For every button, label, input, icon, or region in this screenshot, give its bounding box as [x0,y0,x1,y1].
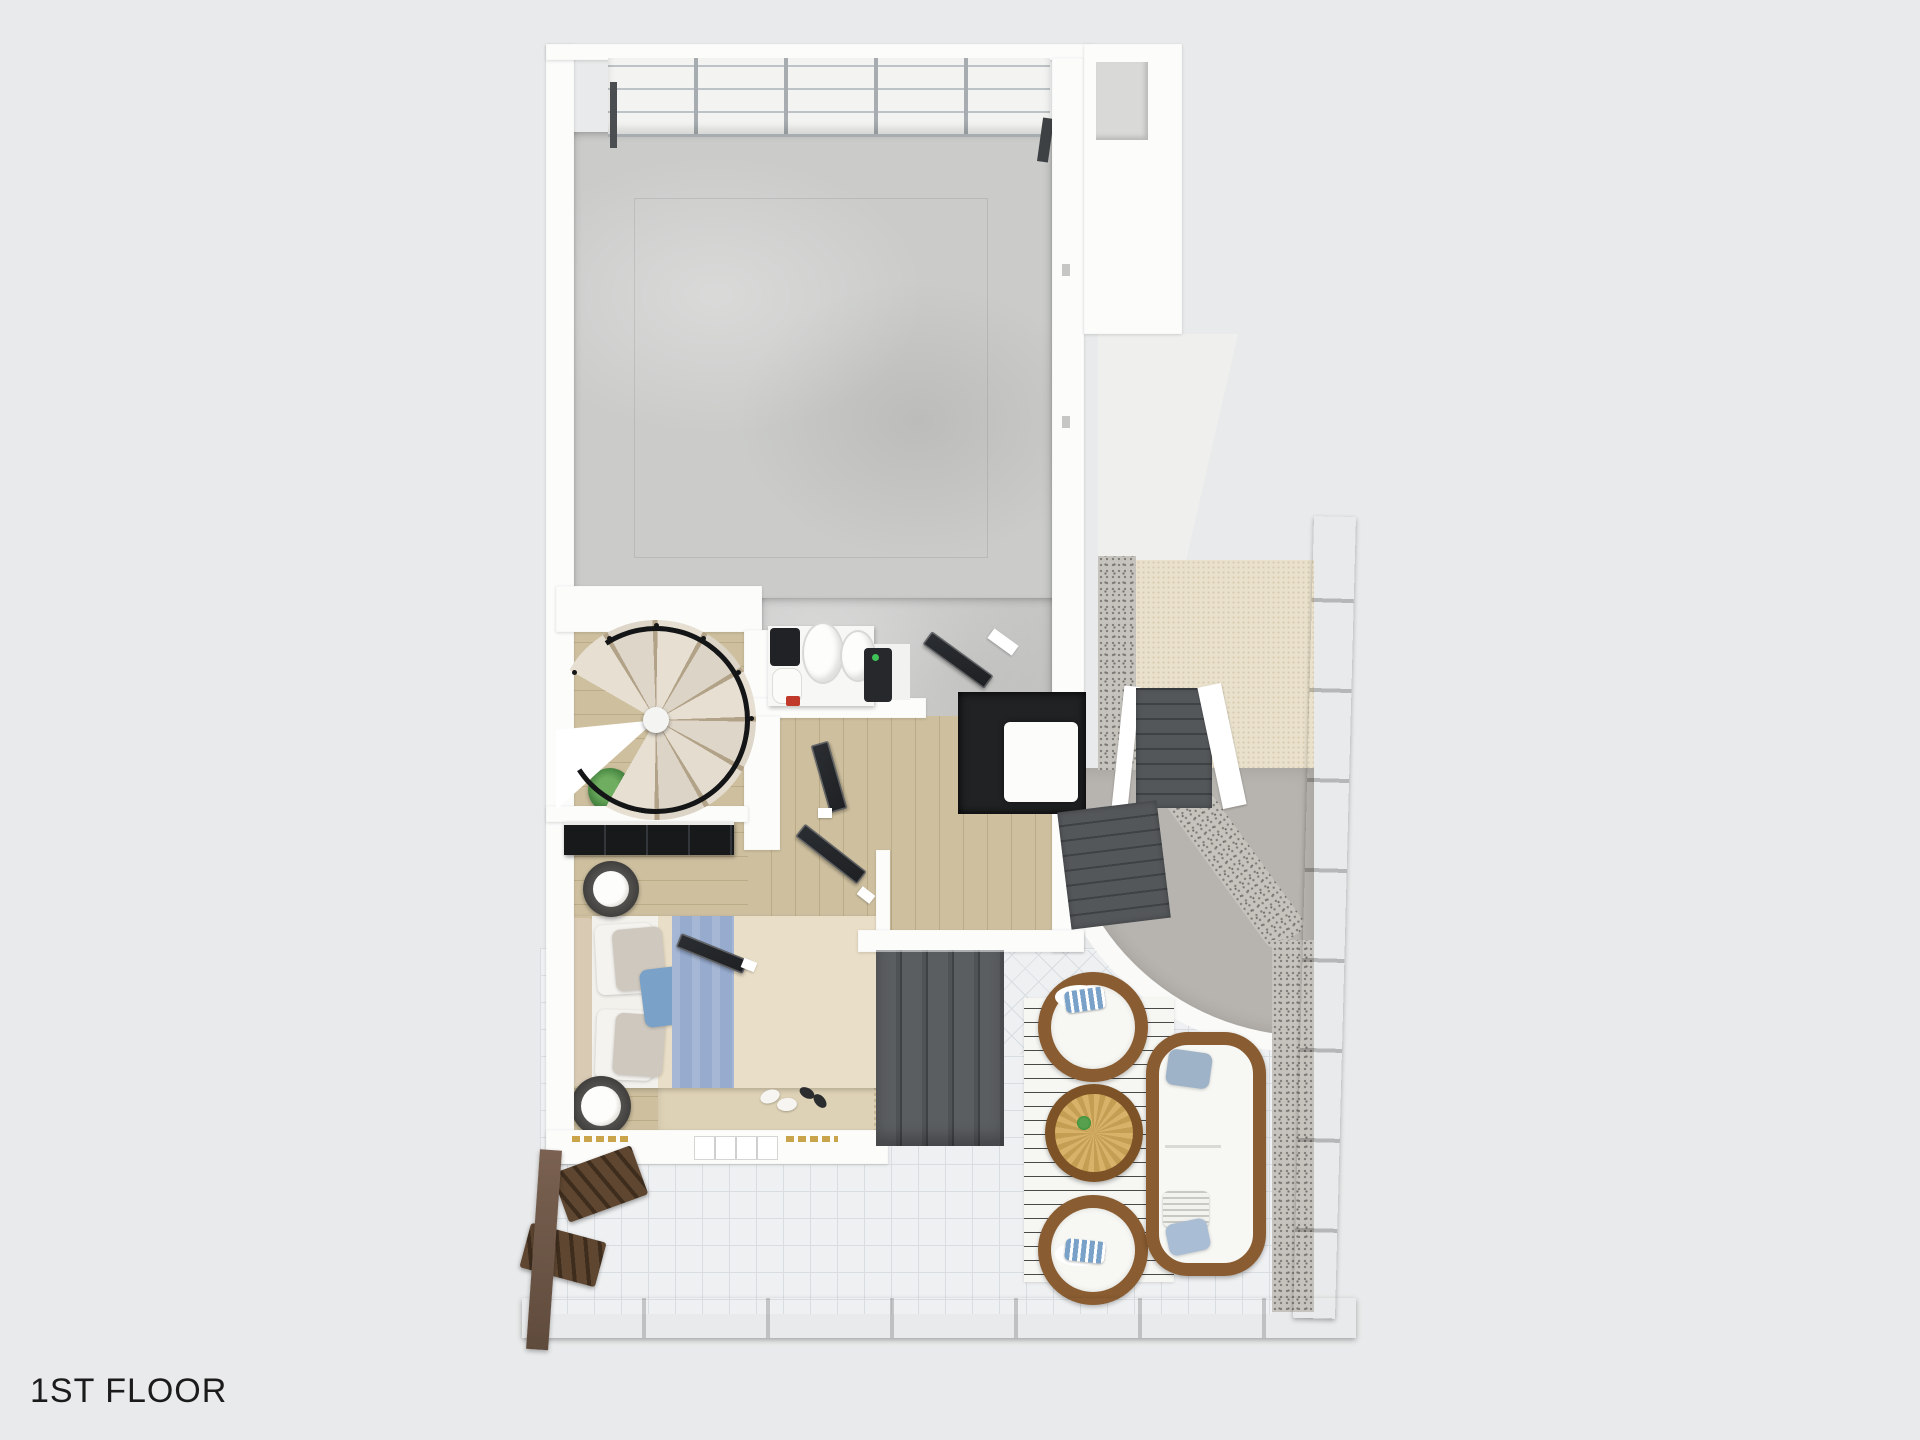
double-bed [570,916,884,1088]
hallway-south-wall [858,930,1084,952]
stair-room-door-frame [818,808,832,818]
window-sill-right [786,1136,838,1142]
annex-niche-floor [1096,62,1148,140]
red-valve [786,696,800,706]
garage-door [608,58,1050,137]
baluster [572,670,577,675]
table-plant [1077,1116,1091,1130]
patio-wide-stairs [876,950,1004,1146]
spiral-center-pole [643,707,669,733]
utility-counter [768,622,912,706]
side-table-bottom [571,1076,631,1136]
garage-floor-joint [634,198,988,558]
side-table-decor [581,1086,621,1126]
chair-pillow-striped [1064,1238,1106,1264]
water-tank-large [802,622,844,684]
baluster [701,636,706,641]
lift-platform [1004,722,1078,802]
control-unit [770,628,800,666]
rattan-sofa [1146,1032,1266,1276]
floor-label: 1ST FLOOR [30,1372,227,1411]
baluster [749,716,754,721]
rattan-round-table [1045,1084,1143,1182]
sofa-pillow-blue [1164,1217,1212,1257]
hvac-indicator-light [872,654,879,661]
sofa-seam [1165,1145,1221,1148]
wall-outlet-1 [1062,264,1070,276]
driveway-slab [1098,334,1238,566]
baluster [736,670,741,675]
sofa-pillow-top [1165,1048,1214,1090]
fence-south [522,1298,1356,1338]
exterior-stairs-lower [1057,800,1171,929]
garage-door-track-left [610,82,617,148]
side-table-top [583,861,639,917]
rattan-chair-bottom [1038,1195,1148,1305]
garage-floor [572,132,1052,598]
spiral-staircase [556,620,756,820]
floor-plan-render: 1ST FLOOR [0,0,1920,1440]
rattan-chair-top [1038,972,1148,1082]
wall-outlet-2 [1062,416,1070,428]
baluster [607,636,612,641]
baluster [654,623,659,628]
chair-pillow-striped [1064,986,1107,1013]
window-sill-left [572,1136,628,1142]
wardrobe [564,822,734,855]
side-table-decor [593,871,629,907]
window-frame-center [694,1136,778,1160]
